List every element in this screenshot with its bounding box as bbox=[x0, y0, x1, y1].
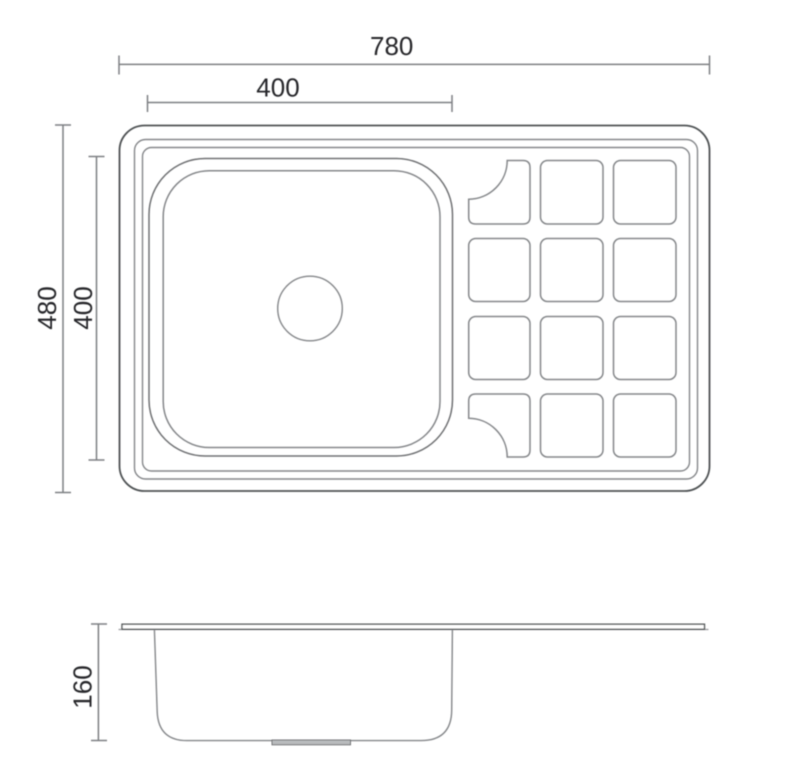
svg-text:400: 400 bbox=[256, 73, 299, 103]
svg-text:480: 480 bbox=[32, 286, 62, 329]
svg-text:780: 780 bbox=[370, 31, 413, 61]
svg-text:400: 400 bbox=[68, 286, 98, 329]
svg-text:160: 160 bbox=[67, 665, 97, 708]
